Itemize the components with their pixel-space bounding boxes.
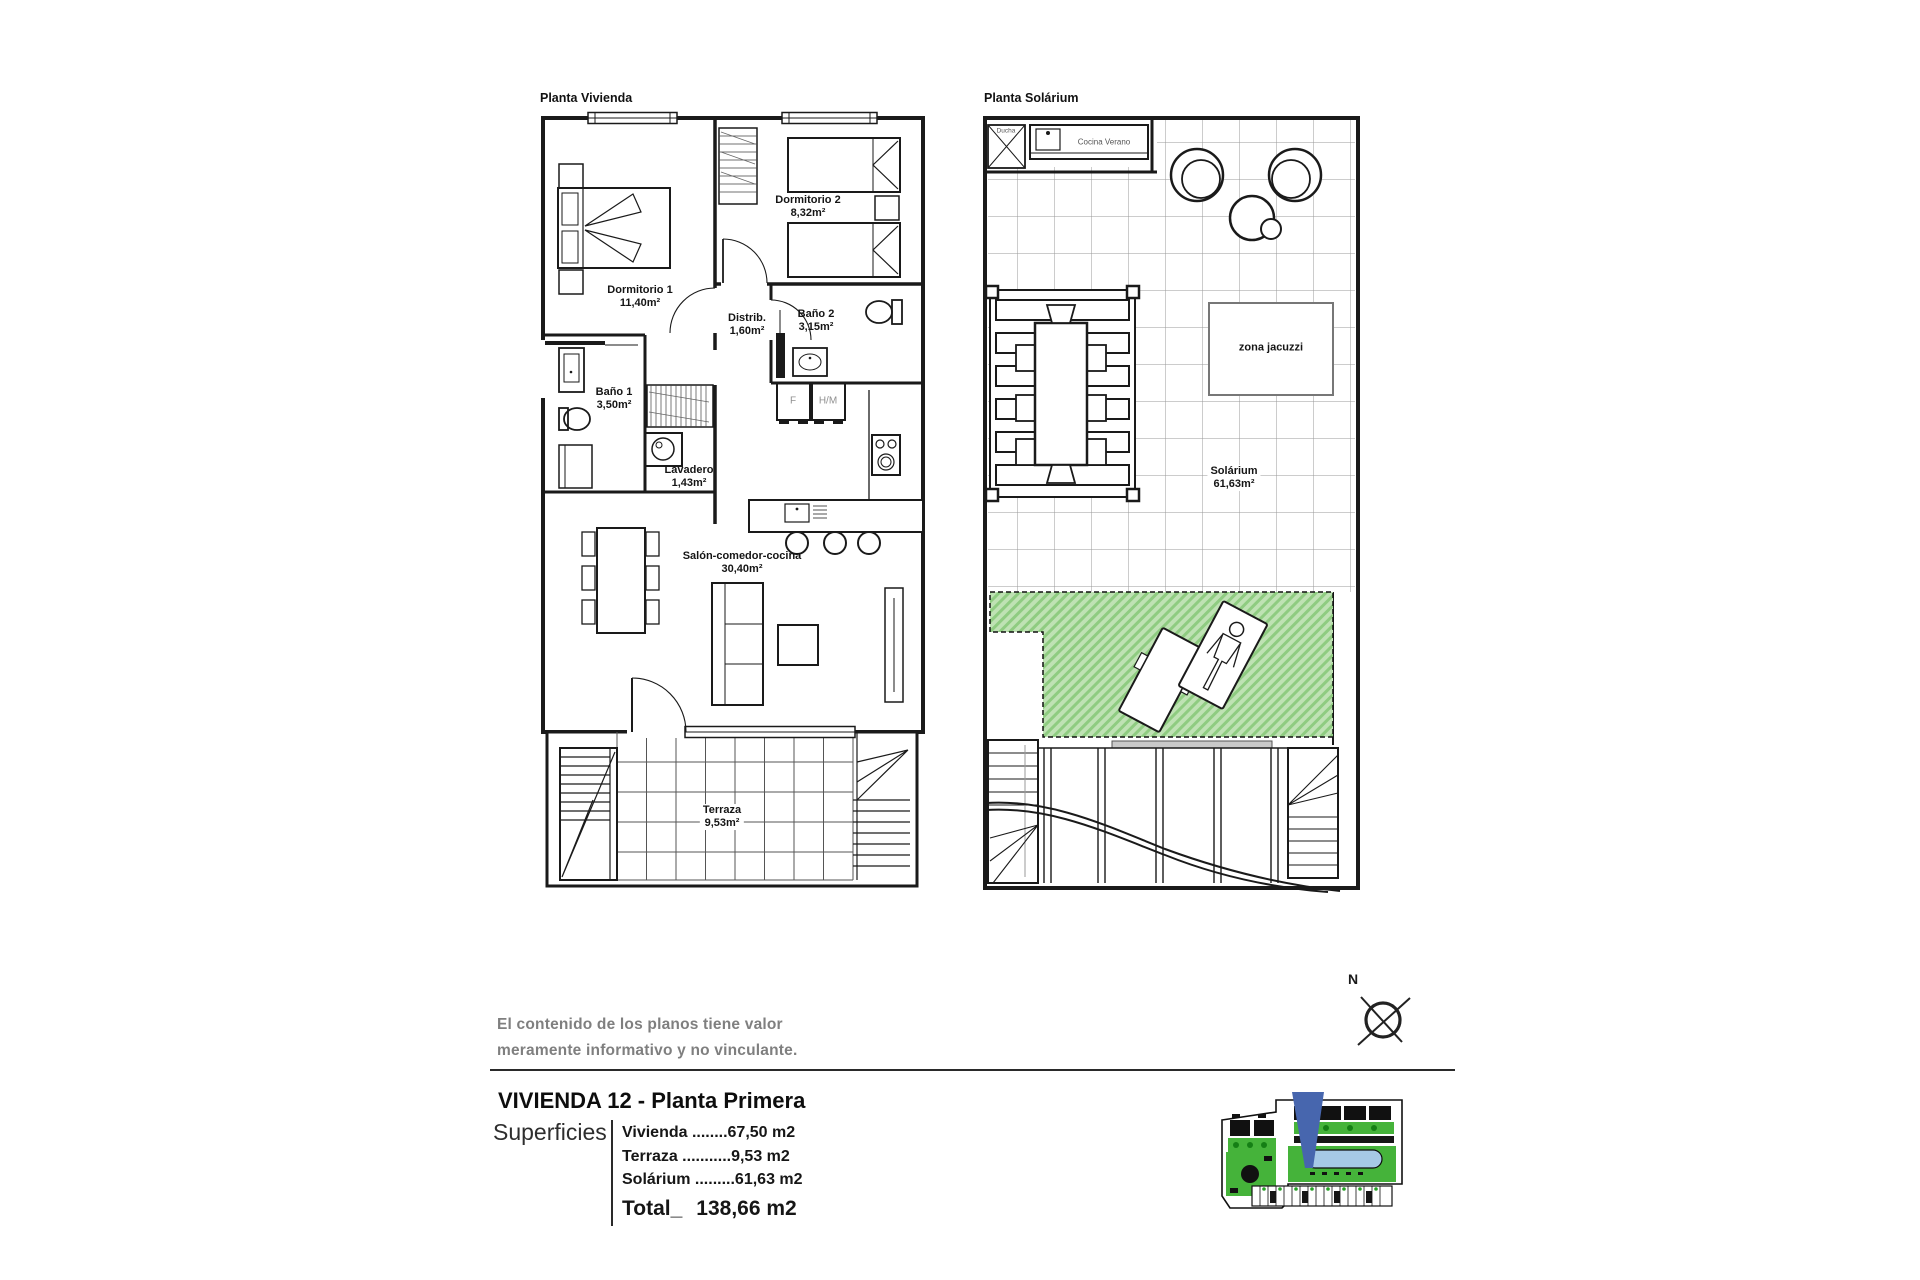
solarium-floorplan-drawing	[980, 105, 1370, 905]
table-row: Solárium .........61,63 m2	[622, 1168, 803, 1192]
surfaces-label: Superficies	[493, 1119, 607, 1146]
vertical-rule	[611, 1120, 613, 1226]
room-label-salon: Salón-comedor-cocina 30,40m²	[683, 550, 802, 576]
compass-north-label: N	[1348, 971, 1358, 987]
page-title: VIVIENDA 12 - Planta Primera	[498, 1088, 805, 1114]
plan-solarium-title: Planta Solárium	[984, 91, 1078, 105]
table-row: Terraza ...........9,53 m2	[622, 1145, 803, 1169]
jacuzzi-zone-label: zona jacuzzi	[1239, 342, 1303, 355]
summer-kitchen-label: Cocina Verano	[1078, 138, 1130, 147]
room-label-dormitorio-2: Dormitorio 2 8,32m²	[775, 194, 840, 220]
pergola-dining-icon	[986, 286, 1139, 501]
plan-sheet: Planta Vivienda	[0, 0, 1920, 1280]
room-label-bano-1: Baño 1 3,50m²	[596, 386, 633, 412]
duct-column	[776, 333, 785, 378]
room-label-solarium: Solárium 61,63m²	[1207, 465, 1260, 491]
washer-label: H/M	[819, 396, 837, 407]
room-label-bano-2: Baño 2 3,15m²	[798, 308, 835, 334]
disclaimer-text: El contenido de los planos tiene valor m…	[497, 1012, 797, 1064]
room-label-lavadero: Lavadero 1,43m²	[665, 464, 714, 490]
surface-table: Vivienda ........67,50 m2 Terraza ......…	[622, 1121, 803, 1220]
room-label-terraza: Terraza 9,53m²	[700, 804, 744, 830]
divider-line	[490, 1069, 1455, 1071]
shower-label: Ducha	[997, 128, 1016, 135]
ledge-bar	[1112, 741, 1272, 748]
vivienda-floorplan-drawing	[535, 100, 930, 900]
site-plan-thumbnail	[1218, 1090, 1418, 1222]
window-icon	[685, 727, 855, 738]
fridge-label: F	[790, 396, 796, 407]
kitchen-peninsula	[749, 500, 923, 532]
room-label-distribuidor: Distrib. 1,60m²	[728, 312, 766, 338]
table-row: Vivienda ........67,50 m2	[622, 1121, 803, 1145]
room-label-dormitorio-1: Dormitorio 1 11,40m²	[607, 284, 672, 310]
vivienda-outer-wall	[543, 118, 923, 732]
total-row: Total_138,66 m2	[622, 1197, 803, 1221]
